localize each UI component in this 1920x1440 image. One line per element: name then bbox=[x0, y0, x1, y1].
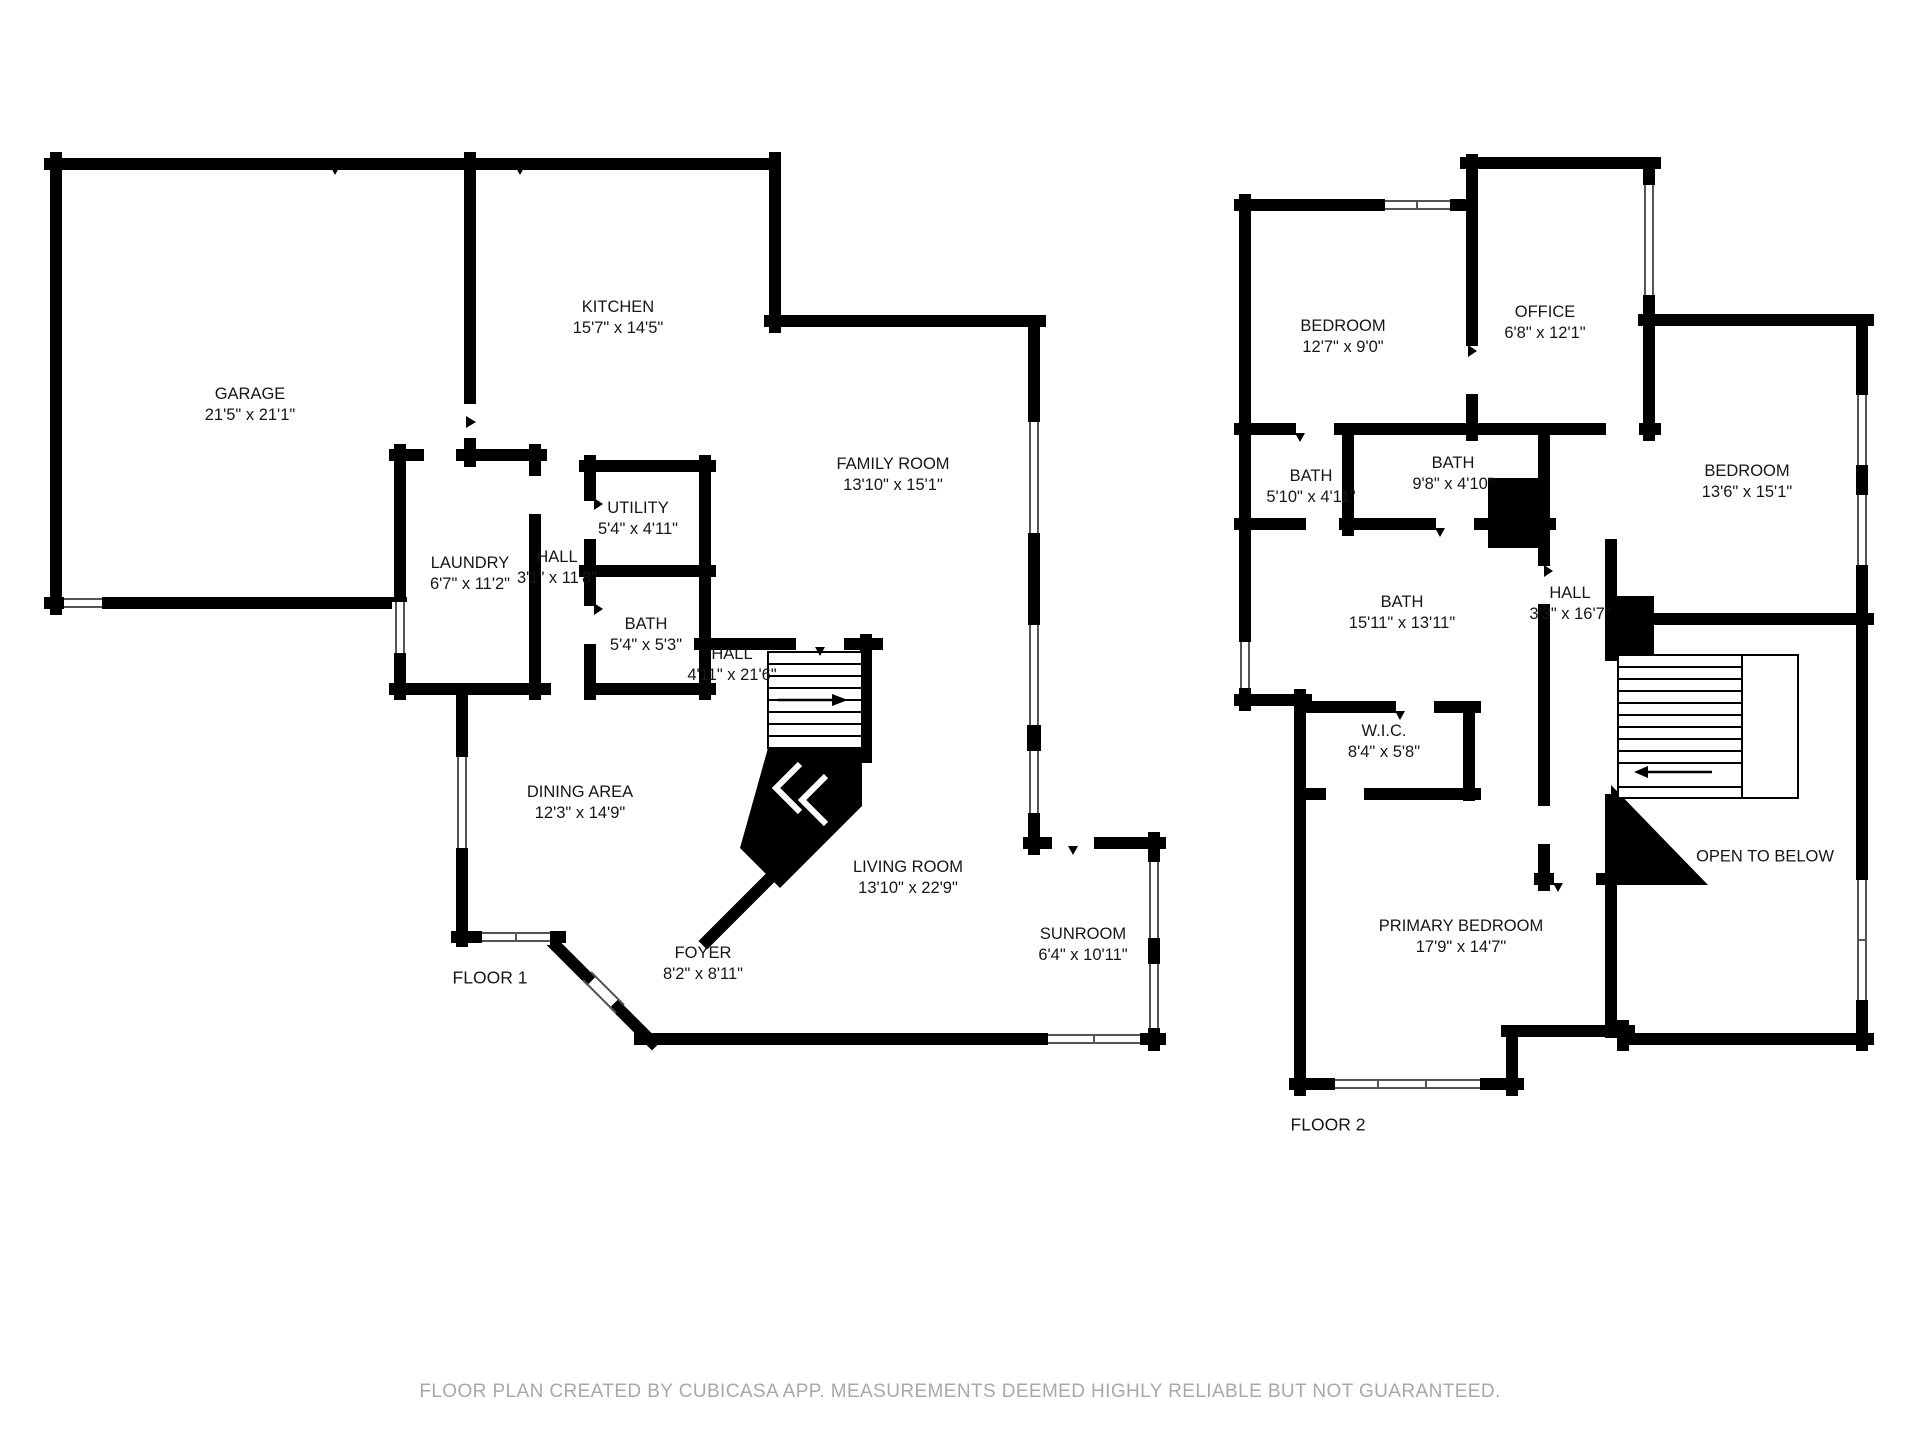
room-label-bedroom-1: BEDROOM12'7" x 9'0" bbox=[1300, 316, 1385, 358]
room-label-hall-2: HALL4'11" x 21'6" bbox=[687, 644, 776, 686]
room-dims: 5'10" x 4'11" bbox=[1266, 487, 1355, 508]
room-dims: 9'8" x 4'10" bbox=[1412, 474, 1493, 495]
floor2-stairs bbox=[1618, 655, 1798, 798]
room-dims: 6'7" x 11'2" bbox=[430, 574, 510, 595]
room-name: DINING AREA bbox=[527, 782, 633, 803]
room-dims: 12'3" x 14'9" bbox=[535, 803, 626, 824]
room-label-open-to-below: OPEN TO BELOW bbox=[1696, 847, 1834, 868]
room-name: PRIMARY BEDROOM bbox=[1379, 916, 1543, 937]
room-dims: 15'11" x 13'11" bbox=[1349, 613, 1455, 634]
room-dims: 5'4" x 5'3" bbox=[610, 635, 682, 656]
room-label-primary-bedroom: PRIMARY BEDROOM17'9" x 14'7" bbox=[1379, 916, 1543, 958]
room-name: LIVING ROOM bbox=[853, 857, 963, 878]
room-dims: 13'6" x 15'1" bbox=[1702, 482, 1793, 503]
room-label-garage: GARAGE21'5" x 21'1" bbox=[205, 384, 296, 426]
room-dims: 8'2" x 8'11" bbox=[663, 964, 743, 985]
room-name: OPEN TO BELOW bbox=[1696, 847, 1834, 868]
room-label-kitchen: KITCHEN15'7" x 14'5" bbox=[573, 297, 664, 339]
room-label-bath-4: BATH15'11" x 13'11" bbox=[1349, 592, 1455, 634]
floor1-stairs bbox=[768, 652, 862, 748]
room-label-foyer: FOYER8'2" x 8'11" bbox=[663, 943, 743, 985]
room-label-hall-3: HALL3'3" x 16'7" bbox=[1529, 583, 1610, 625]
room-dims: 21'5" x 21'1" bbox=[205, 405, 296, 426]
room-name: SUNROOM bbox=[1040, 924, 1126, 945]
floor1-fireplace bbox=[740, 748, 862, 888]
room-dims: 3'1" x 11'8" bbox=[517, 568, 597, 589]
room-label-sunroom: SUNROOM6'4" x 10'11" bbox=[1038, 924, 1127, 966]
room-name: FOYER bbox=[675, 943, 732, 964]
room-dims: 6'4" x 10'11" bbox=[1038, 945, 1127, 966]
floor1-walls bbox=[50, 158, 1160, 1045]
room-name: UTILITY bbox=[607, 498, 668, 519]
room-name: BEDROOM bbox=[1300, 316, 1385, 337]
floor2-label: FLOOR 2 bbox=[1291, 1115, 1366, 1136]
room-label-hall-1: HALL3'1" x 11'8" bbox=[517, 547, 597, 589]
room-name: HALL bbox=[536, 547, 577, 568]
room-name: GARAGE bbox=[215, 384, 286, 405]
room-dims: 13'10" x 15'1" bbox=[843, 475, 943, 496]
room-name: HALL bbox=[1549, 583, 1590, 604]
room-dims: 3'3" x 16'7" bbox=[1529, 604, 1610, 625]
room-label-laundry: LAUNDRY6'7" x 11'2" bbox=[430, 553, 510, 595]
room-dims: 13'10" x 22'9" bbox=[858, 878, 958, 899]
floor1-label: FLOOR 1 bbox=[453, 968, 528, 989]
room-label-living-room: LIVING ROOM13'10" x 22'9" bbox=[853, 857, 963, 899]
room-dims: 4'11" x 21'6" bbox=[687, 665, 776, 686]
room-label-wic: W.I.C.8'4" x 5'8" bbox=[1348, 721, 1420, 763]
room-dims: 6'8" x 12'1" bbox=[1504, 323, 1585, 344]
room-dims: 15'7" x 14'5" bbox=[573, 318, 664, 339]
room-label-family-room: FAMILY ROOM13'10" x 15'1" bbox=[836, 454, 949, 496]
room-dims: 17'9" x 14'7" bbox=[1416, 937, 1507, 958]
room-dims: 5'4" x 4'11" bbox=[598, 519, 678, 540]
room-name: KITCHEN bbox=[582, 297, 654, 318]
room-name: FAMILY ROOM bbox=[836, 454, 949, 475]
room-name: W.I.C. bbox=[1362, 721, 1407, 742]
room-name: HALL bbox=[711, 644, 752, 665]
room-name: LAUNDRY bbox=[431, 553, 510, 574]
room-name: BATH bbox=[625, 614, 668, 635]
room-label-bath-1: BATH5'4" x 5'3" bbox=[610, 614, 682, 656]
room-dims: 8'4" x 5'8" bbox=[1348, 742, 1420, 763]
room-name: BATH bbox=[1381, 592, 1424, 613]
room-name: BATH bbox=[1432, 453, 1475, 474]
room-name: OFFICE bbox=[1515, 302, 1576, 323]
room-name: BATH bbox=[1290, 466, 1333, 487]
room-dims: 12'7" x 9'0" bbox=[1302, 337, 1383, 358]
room-label-office: OFFICE6'8" x 12'1" bbox=[1504, 302, 1585, 344]
room-label-utility: UTILITY5'4" x 4'11" bbox=[598, 498, 678, 540]
room-label-dining-area: DINING AREA12'3" x 14'9" bbox=[527, 782, 633, 824]
footer-disclaimer: FLOOR PLAN CREATED BY CUBICASA APP. MEAS… bbox=[0, 1381, 1920, 1403]
floor2-walls bbox=[1240, 160, 1868, 1090]
room-name: BEDROOM bbox=[1704, 461, 1789, 482]
room-label-bedroom-2: BEDROOM13'6" x 15'1" bbox=[1702, 461, 1793, 503]
floor-plan-drawing bbox=[0, 0, 1920, 1440]
room-label-bath-2: BATH5'10" x 4'11" bbox=[1266, 466, 1355, 508]
room-label-bath-3: BATH9'8" x 4'10" bbox=[1412, 453, 1493, 495]
